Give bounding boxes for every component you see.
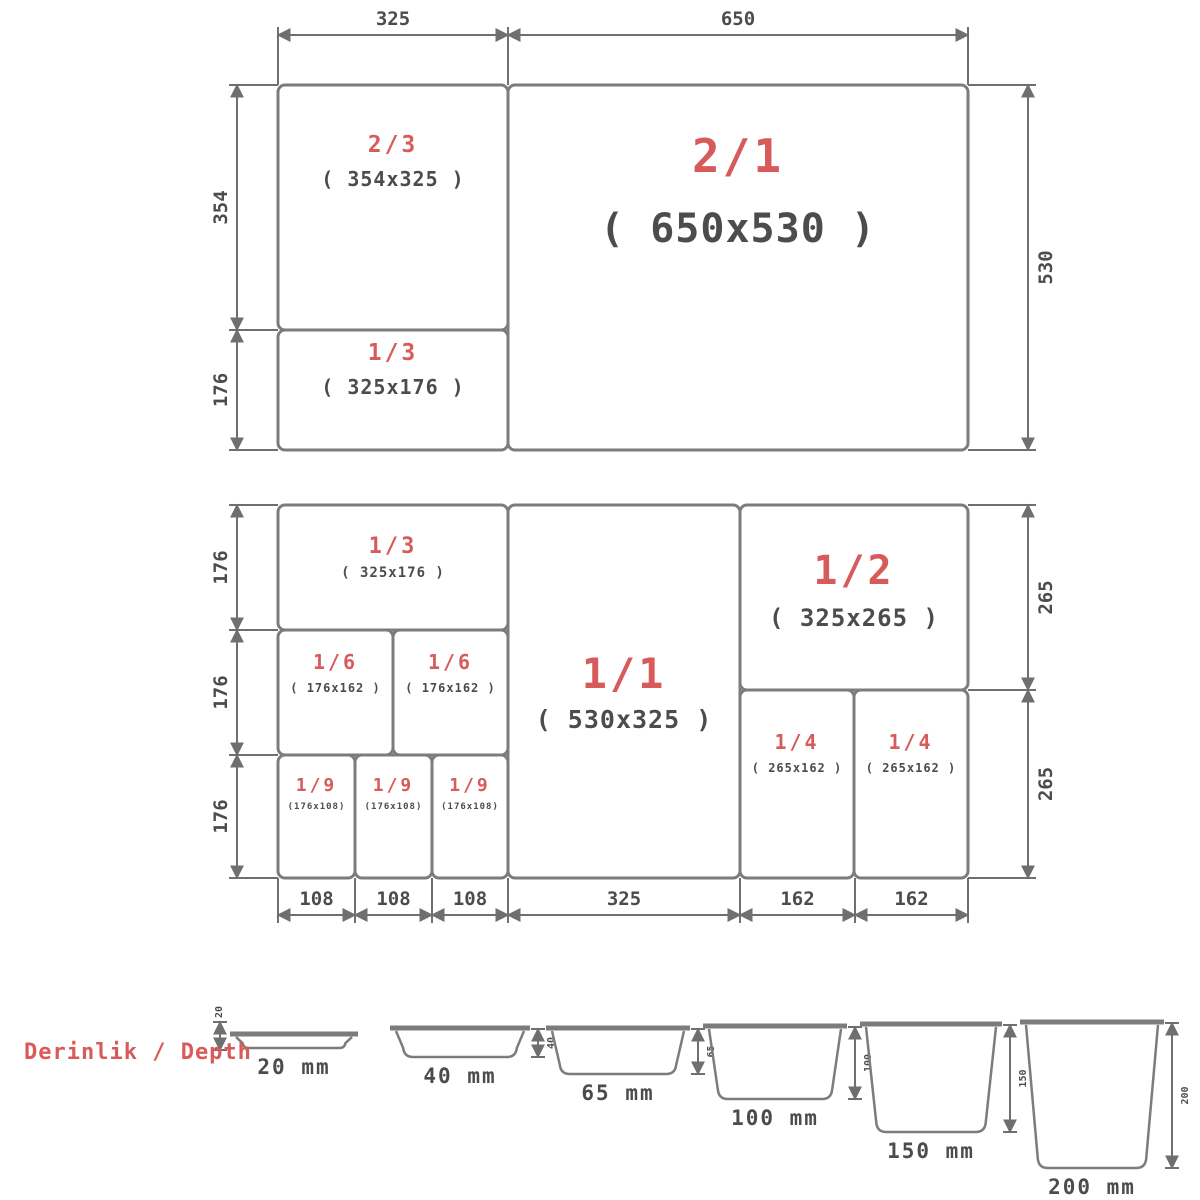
pan-150mm: 150150 mm xyxy=(860,1024,1029,1163)
panel-1-9-b-box xyxy=(355,755,432,878)
panel-1-6-b-fraction-label: 1/6 xyxy=(428,650,473,674)
panel-1-4-b-size-label: ( 265x162 ) xyxy=(866,761,956,775)
pan-200mm-profile xyxy=(1026,1025,1158,1168)
dimension-label: 325 xyxy=(607,888,641,910)
panel-1-1-size-label: ( 530x325 ) xyxy=(536,705,713,734)
panel-1-9-a-size-label: (176x108) xyxy=(288,802,346,812)
dimension-label: 530 xyxy=(1035,250,1057,284)
panel-1-9-c-box xyxy=(432,755,508,878)
dimension-label: 325 xyxy=(376,8,410,30)
panel-1-6-a-fraction-label: 1/6 xyxy=(313,650,358,674)
dimension-label: 162 xyxy=(780,888,814,910)
pan-150mm-profile xyxy=(866,1027,996,1132)
dimension-label: 650 xyxy=(721,8,755,30)
dimension-label: 176 xyxy=(210,799,232,833)
panel-1-3-fraction-label: 1/3 xyxy=(368,340,419,366)
dimension-label: 108 xyxy=(299,888,333,910)
panel-1-6-b-size-label: ( 176x162 ) xyxy=(405,681,495,695)
panel-1-4-a-box xyxy=(740,690,854,878)
pan-65mm-profile xyxy=(552,1031,684,1074)
diagram-content: 2/3( 354x325 )1/3( 325x176 )2/1( 650x530… xyxy=(210,8,1191,1199)
pan-40mm-profile xyxy=(396,1031,524,1057)
dimension-label: 354 xyxy=(210,190,232,224)
panel-1-9-c-fraction-label: 1/9 xyxy=(449,775,491,796)
pan-150mm-depth-tick: 150 xyxy=(1018,1069,1029,1087)
pan-40mm-label: 40 mm xyxy=(423,1064,496,1088)
dimension-label: 108 xyxy=(453,888,487,910)
panel-1-2-fraction-label: 1/2 xyxy=(813,548,894,594)
pan-200mm-label: 200 mm xyxy=(1048,1175,1136,1199)
panel-1-4-b-fraction-label: 1/4 xyxy=(888,730,933,754)
panel-1-9-a-fraction-label: 1/9 xyxy=(296,775,338,796)
panel-2-1-fraction-label: 2/1 xyxy=(692,129,784,183)
pan-100mm-profile xyxy=(709,1029,841,1099)
dimension-label: 162 xyxy=(894,888,928,910)
pan-100mm: 100100 mm xyxy=(703,1026,874,1130)
middle-assembly: 1/3( 325x176 )1/6( 176x162 )1/6( 176x162… xyxy=(210,505,1057,923)
top-assembly: 2/3( 354x325 )1/3( 325x176 )2/1( 650x530… xyxy=(210,8,1057,450)
panel-1-3-mid-fraction-label: 1/3 xyxy=(369,534,418,559)
pan-20mm-label: 20 mm xyxy=(257,1055,330,1079)
panel-1-4-a-fraction-label: 1/4 xyxy=(774,730,819,754)
pan-150mm-label: 150 mm xyxy=(887,1139,975,1163)
pan-100mm-label: 100 mm xyxy=(731,1106,819,1130)
dimension-label: 176 xyxy=(210,373,232,407)
panel-2-3-fraction-label: 2/3 xyxy=(368,132,419,158)
panel-1-9-b-fraction-label: 1/9 xyxy=(373,775,415,796)
pan-65mm-label: 65 mm xyxy=(581,1081,654,1105)
panel-2-3-box xyxy=(278,85,508,330)
diagram-canvas: 2/3( 354x325 )1/3( 325x176 )2/1( 650x530… xyxy=(0,0,1200,1200)
pan-200mm: 200200 mm xyxy=(1020,1022,1191,1199)
panel-1-2-box xyxy=(740,505,968,690)
panel-1-9-c-size-label: (176x108) xyxy=(441,802,499,812)
panel-1-6-a-size-label: ( 176x162 ) xyxy=(290,681,380,695)
pan-20mm-depth-tick: 20 xyxy=(214,1006,225,1018)
dimension-label: 176 xyxy=(210,550,232,584)
dimension-label: 108 xyxy=(376,888,410,910)
panel-2-3-size-label: ( 354x325 ) xyxy=(321,167,464,191)
gn-pan-size-diagram: 2/3( 354x325 )1/3( 325x176 )2/1( 650x530… xyxy=(0,0,1200,1200)
panel-1-4-b-box xyxy=(854,690,968,878)
pan-200mm-depth-tick: 200 xyxy=(1180,1086,1191,1104)
panel-1-1-fraction-label: 1/1 xyxy=(582,649,667,698)
pan-40mm: 4040 mm xyxy=(390,1028,557,1088)
dimension-label: 265 xyxy=(1035,580,1057,614)
pan-65mm: 6565 mm xyxy=(546,1028,717,1105)
panel-1-4-a-size-label: ( 265x162 ) xyxy=(752,761,842,775)
panel-1-9-b-size-label: (176x108) xyxy=(365,802,423,812)
depth-section-label: Derinlik / Depth xyxy=(24,1040,252,1065)
panel-1-9-a-box xyxy=(278,755,355,878)
panel-2-1-size-label: ( 650x530 ) xyxy=(600,206,876,252)
panel-1-2-size-label: ( 325x265 ) xyxy=(769,604,939,632)
panel-1-3-mid-size-label: ( 325x176 ) xyxy=(341,565,445,581)
dimension-label: 176 xyxy=(210,675,232,709)
pan-20mm-profile xyxy=(236,1037,352,1048)
panel-1-3-size-label: ( 325x176 ) xyxy=(321,375,464,399)
dimension-label: 265 xyxy=(1035,767,1057,801)
